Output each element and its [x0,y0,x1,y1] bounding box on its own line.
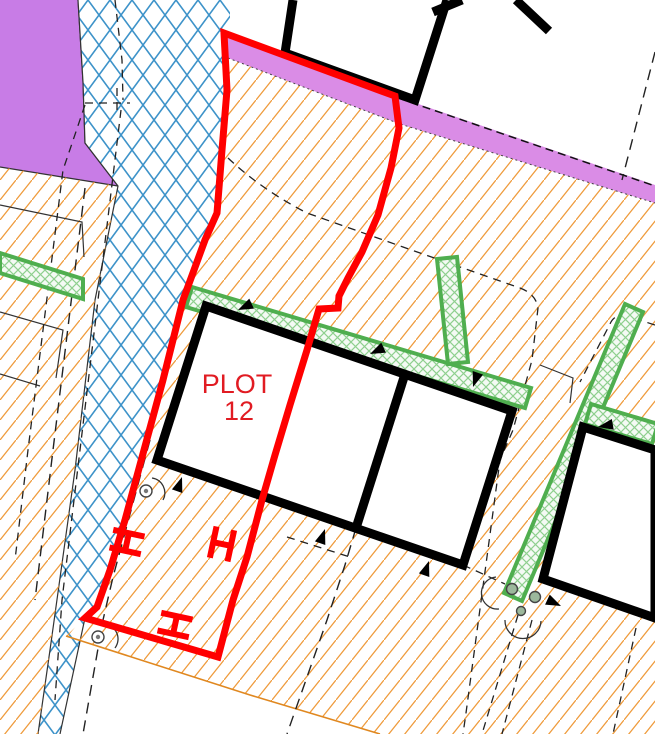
plot-label-line2: 12 [224,396,254,426]
plot-label-line1: PLOT [202,369,273,399]
site-plan-drawing: PLOT 12 [0,0,655,734]
site-plan-canvas: PLOT 12 [0,0,655,734]
